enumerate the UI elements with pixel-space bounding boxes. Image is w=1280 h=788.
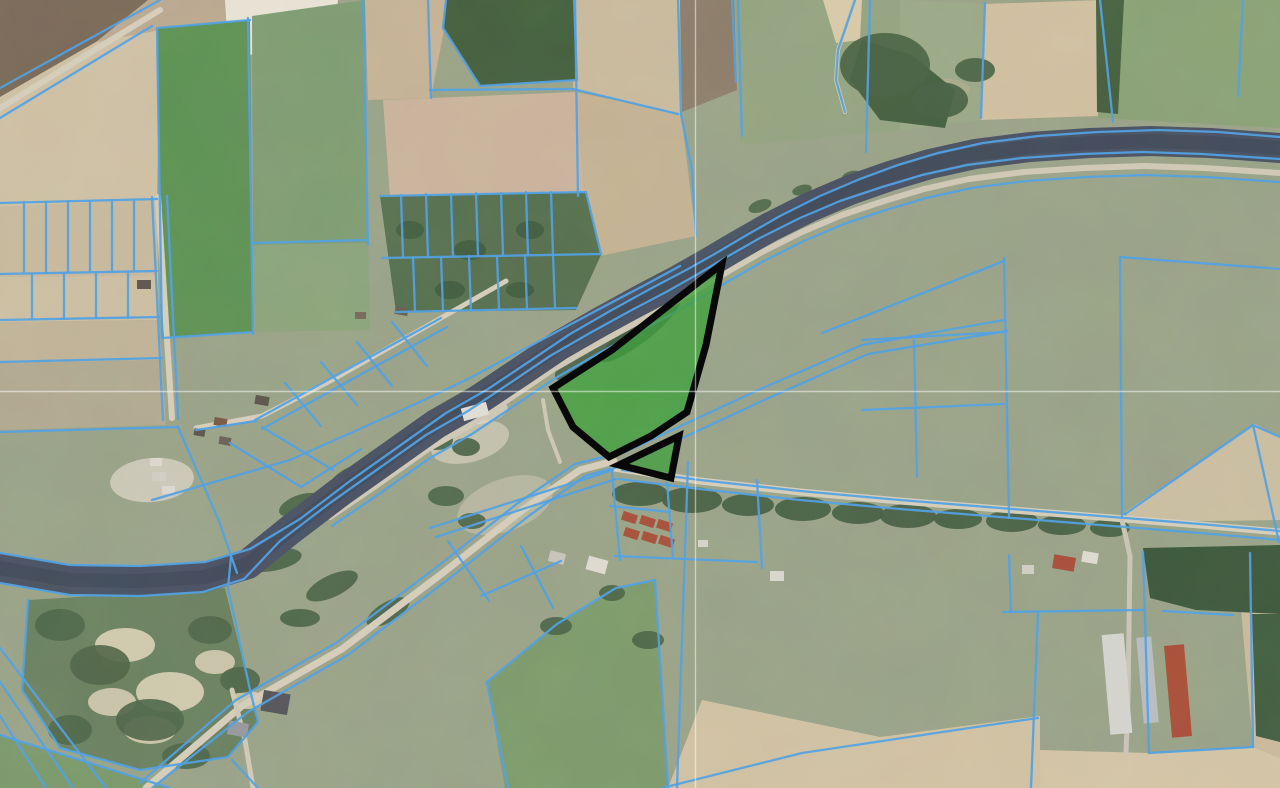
- map-viewport[interactable]: [0, 0, 1280, 788]
- map-svg[interactable]: [0, 0, 1280, 788]
- texture-grain-overlay: [0, 0, 1280, 788]
